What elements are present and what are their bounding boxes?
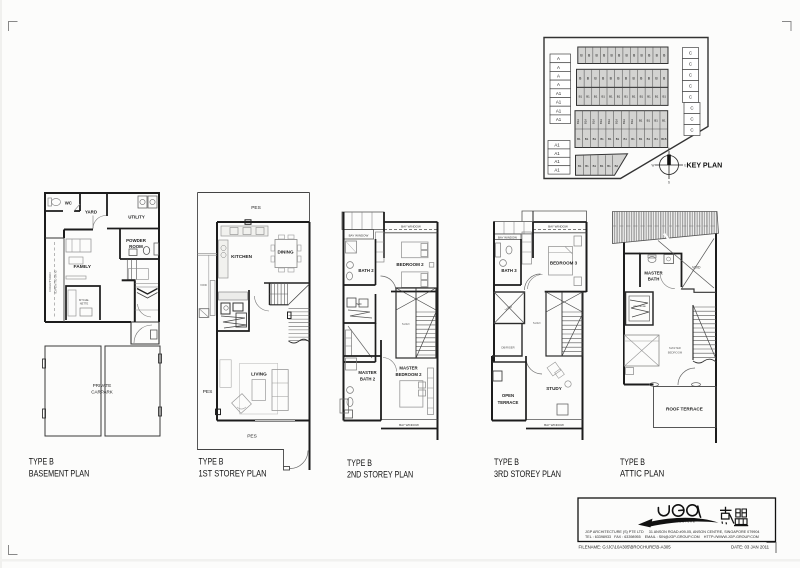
svg-text:A1: A1: [554, 168, 560, 173]
svg-text:B1: B1: [639, 137, 643, 141]
svg-text:TYPE B: TYPE B: [494, 457, 519, 468]
svg-text:WC: WC: [65, 201, 72, 206]
svg-text:B1: B1: [616, 137, 620, 141]
svg-text:YARD: YARD: [85, 210, 97, 215]
svg-text:B2: B2: [615, 164, 619, 168]
svg-text:BAY WINDOW: BAY WINDOW: [498, 235, 517, 239]
svg-text:A1: A1: [556, 91, 562, 96]
svg-text:COURTYARD: COURTYARD: [48, 272, 52, 292]
svg-text:C: C: [690, 117, 693, 122]
svg-text:NETTE: NETTE: [80, 302, 89, 306]
svg-text:B1: B1: [662, 95, 666, 99]
svg-text:C: C: [689, 73, 692, 78]
svg-text:TEL : 63398933 FAX : 6339895: TEL : 63398933 FAX : 63398955 EMAIL : SI…: [585, 535, 759, 539]
svg-text:ROOM: ROOM: [129, 244, 143, 249]
svg-text:A1: A1: [556, 100, 562, 105]
svg-text:KITCHEN: KITCHEN: [231, 254, 252, 259]
svg-text:C: C: [690, 106, 693, 111]
svg-text:B1: B1: [600, 164, 604, 168]
svg-text:B1: B1: [631, 137, 635, 141]
svg-text:PES: PES: [251, 205, 261, 211]
svg-text:BEDROOM 2: BEDROOM 2: [395, 372, 422, 377]
svg-text:DINING: DINING: [277, 250, 294, 255]
svg-text:B1A: B1A: [599, 119, 603, 124]
svg-text:BAY WINDOW: BAY WINDOW: [399, 423, 419, 427]
svg-text:B1: B1: [624, 95, 628, 99]
svg-text:B1: B1: [640, 95, 644, 99]
svg-text:ROOF TERRACE: ROOF TERRACE: [666, 406, 703, 411]
svg-text:A: A: [557, 73, 560, 78]
svg-text:B1: B1: [639, 119, 643, 123]
svg-text:1ST STOREY PLAN: 1ST STOREY PLAN: [199, 468, 267, 479]
svg-text:CARPARK: CARPARK: [91, 390, 112, 395]
svg-text:A: A: [557, 82, 560, 87]
svg-text:B1A: B1A: [591, 119, 595, 124]
svg-text:BATH 2: BATH 2: [358, 268, 374, 273]
svg-text:BEDROOM 2: BEDROOM 2: [396, 262, 424, 267]
svg-text:TYPE B: TYPE B: [199, 456, 224, 467]
svg-text:B1: B1: [654, 119, 658, 123]
svg-text:FAMILY: FAMILY: [74, 264, 92, 270]
svg-text:B1B: B1B: [661, 137, 666, 141]
svg-text:BATH 2: BATH 2: [360, 377, 376, 382]
svg-text:VOID: VOID: [692, 265, 701, 269]
svg-text:B1: B1: [593, 164, 597, 168]
svg-text:BAY WINDOW: BAY WINDOW: [401, 225, 421, 229]
svg-text:B1: B1: [654, 137, 658, 141]
svg-text:STUDY: STUDY: [546, 386, 562, 391]
svg-text:A1: A1: [554, 151, 560, 156]
svg-text:A1: A1: [554, 142, 560, 147]
svg-text:DB/RISER: DB/RISER: [501, 346, 514, 350]
svg-text:B1: B1: [662, 119, 666, 123]
svg-text:OPEN: OPEN: [502, 393, 514, 398]
svg-text:B1: B1: [624, 137, 628, 141]
svg-text:B1: B1: [585, 137, 589, 141]
svg-text:BASEMENT PLAN: BASEMENT PLAN: [29, 468, 90, 479]
svg-text:B1: B1: [617, 95, 621, 99]
svg-text:C: C: [690, 128, 693, 133]
svg-text:BAY WINDOW: BAY WINDOW: [548, 225, 568, 229]
svg-text:KITCHE-: KITCHE-: [79, 298, 90, 302]
svg-text:A1: A1: [556, 117, 562, 122]
svg-text:A: A: [557, 56, 560, 61]
svg-text:TERRACE: TERRACE: [498, 400, 519, 405]
svg-text:2ND STOREY PLAN: 2ND STOREY PLAN: [347, 470, 413, 481]
svg-text:PES: PES: [203, 389, 213, 395]
svg-text:B1A: B1A: [576, 119, 580, 124]
svg-text:WARDROBE: WARDROBE: [633, 305, 646, 308]
svg-text:TYPE B: TYPE B: [620, 457, 645, 468]
svg-text:B1: B1: [647, 95, 651, 99]
svg-text:MASTER: MASTER: [358, 370, 377, 375]
svg-text:B1: B1: [577, 137, 581, 141]
svg-text:B1A: B1A: [630, 119, 634, 124]
svg-text:B1: B1: [608, 137, 612, 141]
svg-text:TYPE B: TYPE B: [29, 456, 54, 467]
svg-text:B1: B1: [586, 95, 590, 99]
svg-text:TYPE B: TYPE B: [347, 458, 372, 469]
svg-text:MASTER: MASTER: [399, 366, 418, 371]
svg-text:A1: A1: [556, 108, 562, 113]
svg-text:B1: B1: [647, 119, 651, 123]
svg-text:PES: PES: [247, 434, 257, 440]
svg-text:VOID: VOID: [200, 283, 207, 287]
svg-text:B1A: B1A: [607, 119, 611, 124]
svg-text:C: C: [689, 84, 692, 89]
svg-text:C: C: [689, 62, 692, 67]
svg-text:ATTIC PLAN: ATTIC PLAN: [620, 469, 664, 480]
svg-text:B1: B1: [585, 164, 589, 168]
svg-text:LIVING: LIVING: [251, 371, 267, 376]
svg-text:(OPEN TO SKY): (OPEN TO SKY): [54, 271, 58, 294]
svg-text:B1: B1: [601, 95, 605, 99]
svg-text:S: S: [668, 181, 670, 185]
svg-text:W/D: W/D: [356, 302, 361, 306]
svg-text:B1: B1: [632, 95, 636, 99]
svg-text:B1A: B1A: [614, 119, 618, 124]
svg-text:5x202=: 5x202=: [402, 323, 411, 326]
svg-text:B1: B1: [609, 95, 613, 99]
svg-text:DATE: 03 JAN 2011: DATE: 03 JAN 2011: [731, 545, 770, 550]
svg-text:POWDER: POWDER: [126, 238, 147, 243]
svg-text:B1A: B1A: [622, 119, 626, 124]
svg-text:C: C: [689, 51, 692, 56]
svg-text:B1: B1: [600, 137, 604, 141]
svg-text:B1: B1: [578, 164, 582, 168]
svg-text:B1: B1: [647, 137, 651, 141]
svg-text:B1A: B1A: [584, 119, 588, 124]
svg-text:B1: B1: [594, 95, 598, 99]
svg-text:B1: B1: [579, 95, 583, 99]
svg-text:A1: A1: [554, 159, 560, 164]
svg-text:FILENAME: G:\JC\10A305\BROCHUR: FILENAME: G:\JC\10A305\BROCHURE\B-A305: [579, 545, 672, 550]
svg-text:B1: B1: [655, 95, 659, 99]
svg-text:MASTER: MASTER: [669, 346, 681, 350]
svg-text:BEDROOM 3: BEDROOM 3: [550, 261, 578, 266]
svg-text:BATH: BATH: [648, 277, 660, 282]
svg-text:C: C: [689, 95, 692, 100]
svg-text:BEDROOM: BEDROOM: [668, 351, 683, 355]
svg-text:PRIVATE: PRIVATE: [93, 383, 112, 388]
svg-text:KEY PLAN: KEY PLAN: [687, 162, 723, 170]
svg-text:BATH 3: BATH 3: [501, 268, 517, 273]
svg-text:W: W: [651, 164, 654, 168]
svg-text:JGP ARCHITECTURE (S) PTE LTD: JGP ARCHITECTURE (S) PTE LTD 31 ANSON RO…: [585, 530, 759, 534]
svg-text:UTILITY: UTILITY: [128, 215, 145, 220]
svg-text:B1: B1: [593, 137, 597, 141]
svg-text:3RD STOREY PLAN: 3RD STOREY PLAN: [494, 469, 561, 480]
svg-text:B1: B1: [607, 164, 611, 168]
svg-text:5x202=: 5x202=: [533, 322, 542, 325]
svg-text:BAY WINDOW: BAY WINDOW: [544, 423, 564, 427]
svg-text:BAY WINDOW: BAY WINDOW: [349, 234, 369, 238]
svg-text:A: A: [557, 65, 560, 70]
